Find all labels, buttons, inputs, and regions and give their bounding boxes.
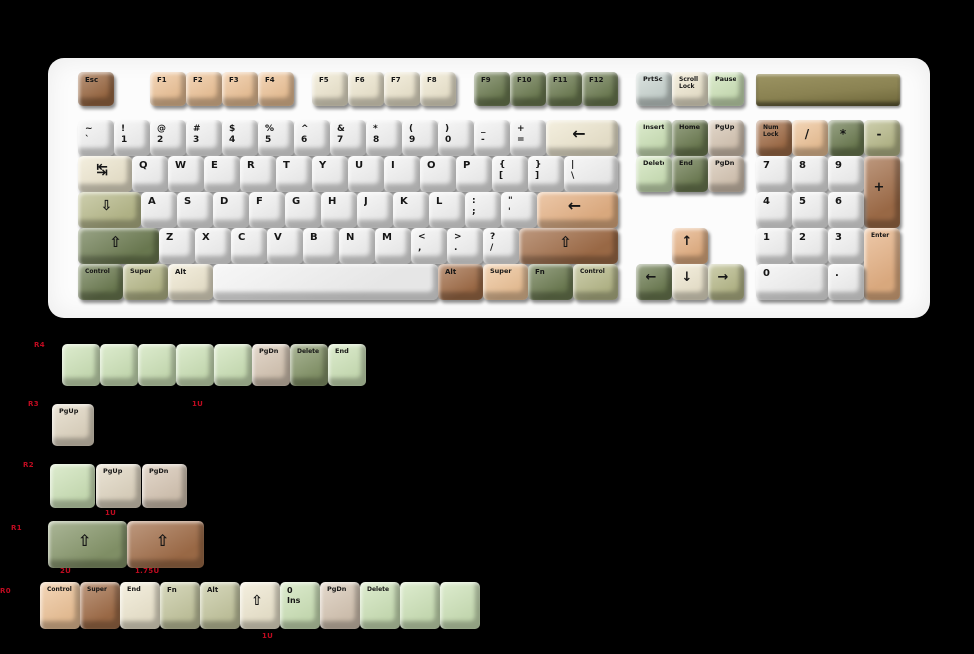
size-annotation: 1.75U	[135, 567, 159, 575]
key-6: ^ 6	[294, 120, 330, 156]
key-legend: Esc	[85, 76, 106, 95]
key-shift-2u: ⇧	[48, 521, 127, 568]
key-legend: ←	[549, 122, 609, 146]
key-f6: F6	[348, 72, 384, 106]
key-numpad-7: 7	[756, 156, 792, 192]
key-legend: 0 Ins	[287, 586, 312, 618]
key-pgup: PgUp	[96, 464, 141, 508]
key-numpad-6: 6	[828, 192, 864, 228]
key-legend: ⇧	[243, 584, 271, 619]
key-left-super: Super	[123, 264, 168, 300]
key-legend: S	[184, 196, 205, 217]
key-legend: PgDn	[715, 160, 736, 181]
key-legend: PgDn	[149, 468, 179, 497]
key-1: ! 1	[114, 120, 150, 156]
key-delete: Delete	[290, 344, 328, 386]
key-legend: W	[175, 160, 196, 181]
key-legend: Insert	[643, 124, 664, 145]
key-rbracket: } ]	[528, 156, 564, 192]
key-alt: Alt	[200, 582, 240, 629]
key-legend	[407, 586, 432, 618]
row-annotation: R1	[11, 524, 22, 532]
key-e: E	[204, 156, 240, 192]
key-arrow-right: →	[708, 264, 744, 300]
key-fn: Fn	[160, 582, 200, 629]
size-annotation: 1U	[262, 632, 273, 640]
key-legend: →	[711, 266, 735, 290]
key-legend: V	[274, 232, 295, 253]
key-f: F	[249, 192, 285, 228]
key-quote: " '	[501, 192, 537, 228]
key-m: M	[375, 228, 411, 264]
key-legend: Q	[139, 160, 160, 181]
key-legend: Alt	[207, 586, 232, 618]
key-n: N	[339, 228, 375, 264]
key-b: B	[303, 228, 339, 264]
key-num-lock: Num Lock	[756, 120, 792, 156]
key-legend: -	[867, 122, 891, 146]
key-arrow-down: ↓	[672, 264, 708, 300]
key-pause: Pause	[708, 72, 744, 106]
key-legend: PgUp	[59, 408, 86, 435]
key-shift-1u: ⇧	[240, 582, 280, 629]
key-numpad-1: 1	[756, 228, 792, 264]
key-legend: U	[355, 160, 376, 181]
key-right-shift: ⇧	[519, 228, 618, 264]
key-numpad-minus: -	[864, 120, 900, 156]
key-legend: R	[247, 160, 268, 181]
key-legend: End	[127, 586, 152, 618]
key-legend: F5	[319, 76, 340, 95]
key-blank	[50, 464, 95, 508]
key-legend: ) 0	[445, 124, 466, 145]
key-legend: > .	[454, 232, 475, 253]
key-blank	[62, 344, 100, 386]
key-end: End	[120, 582, 160, 629]
key-legend: " '	[508, 196, 529, 217]
key-legend	[145, 348, 168, 375]
key-t: T	[276, 156, 312, 192]
key-s: S	[177, 192, 213, 228]
key-0-ins: 0 Ins	[280, 582, 320, 629]
key-period: > .	[447, 228, 483, 264]
key-legend: Fn	[535, 268, 565, 289]
key-7: & 7	[330, 120, 366, 156]
key-legend: G	[292, 196, 313, 217]
key-q: Q	[132, 156, 168, 192]
key-legend: T	[283, 160, 304, 181]
key-legend	[107, 348, 130, 375]
key-numpad-0: 0	[756, 264, 828, 300]
size-annotation: 2U	[60, 567, 71, 575]
key-r: R	[240, 156, 276, 192]
key-numpad-dot: .	[828, 264, 864, 300]
key-legend: Num Lock	[763, 124, 784, 145]
key-pgup: PgUp	[708, 120, 744, 156]
key-left-shift: ⇧	[78, 228, 159, 264]
key-right-alt: Alt	[438, 264, 483, 300]
size-annotation: 1U	[192, 400, 203, 408]
key-h: H	[321, 192, 357, 228]
key-legend: Fn	[167, 586, 192, 618]
key-legend: Control	[47, 586, 72, 618]
key-o: O	[420, 156, 456, 192]
key-0: ) 0	[438, 120, 474, 156]
key-legend: PgDn	[327, 586, 352, 618]
key-pgdn: PgDn	[252, 344, 290, 386]
key-legend: ⇧	[522, 230, 609, 254]
key-legend	[183, 348, 206, 375]
key-5: % 5	[258, 120, 294, 156]
row-annotation: R4	[34, 341, 45, 349]
key-grave: ~ `	[78, 120, 114, 156]
key-legend	[447, 586, 472, 618]
key-blank	[400, 582, 440, 629]
key-x: X	[195, 228, 231, 264]
key-legend: 2	[799, 232, 820, 253]
key-delete: Delete	[636, 156, 672, 192]
key-legend: _ -	[481, 124, 502, 145]
key-right-control: Control	[573, 264, 618, 300]
key-legend: PrtSc	[643, 76, 664, 95]
key-legend: % 5	[265, 124, 286, 145]
key-legend: $ 4	[229, 124, 250, 145]
key-equals: + =	[510, 120, 546, 156]
key-legend: F10	[517, 76, 538, 95]
key-legend: & 7	[337, 124, 358, 145]
row-annotation: R0	[0, 587, 11, 595]
key-legend: +	[867, 158, 891, 218]
key-legend: ^ 6	[301, 124, 322, 145]
key-legend: E	[211, 160, 232, 181]
key-l: L	[429, 192, 465, 228]
key-pgdn: PgDn	[708, 156, 744, 192]
key-legend: O	[427, 160, 448, 181]
key-minus: _ -	[474, 120, 510, 156]
key-numpad-4: 4	[756, 192, 792, 228]
key-legend: F4	[265, 76, 286, 95]
key-k: K	[393, 192, 429, 228]
key-legend: F6	[355, 76, 376, 95]
row-annotation: R3	[28, 400, 39, 408]
key-super: Super	[80, 582, 120, 629]
key-legend	[69, 348, 92, 375]
key-numpad-3: 3	[828, 228, 864, 264]
key-legend: F8	[427, 76, 448, 95]
key-enter: ←	[537, 192, 618, 228]
key-legend: 4	[763, 196, 784, 217]
key-home: Home	[672, 120, 708, 156]
key-legend: Scroll Lock	[679, 76, 700, 95]
key-fn: Fn	[528, 264, 573, 300]
key-left-control: Control	[78, 264, 123, 300]
key-3: # 3	[186, 120, 222, 156]
key-p: P	[456, 156, 492, 192]
key-comma: < ,	[411, 228, 447, 264]
key-insert: Insert	[636, 120, 672, 156]
key-legend: N	[346, 232, 367, 253]
key-legend: ! 1	[121, 124, 142, 145]
key-legend: Delete	[297, 348, 320, 375]
key-legend	[221, 348, 244, 375]
key-blank	[440, 582, 480, 629]
key-legend	[220, 268, 430, 289]
key-numpad-slash: /	[792, 120, 828, 156]
key-esc: Esc	[78, 72, 114, 106]
key-legend: F1	[157, 76, 178, 95]
key-4: $ 4	[222, 120, 258, 156]
key-f10: F10	[510, 72, 546, 106]
key-legend: ↓	[675, 266, 699, 290]
key-i: I	[384, 156, 420, 192]
key-f11: F11	[546, 72, 582, 106]
key-u: U	[348, 156, 384, 192]
key-numpad-8: 8	[792, 156, 828, 192]
row-annotation: R2	[23, 461, 34, 469]
key-legend: ←	[540, 194, 609, 218]
key-end: End	[672, 156, 708, 192]
key-pgup: PgUp	[52, 404, 94, 446]
key-f4: F4	[258, 72, 294, 106]
key-legend: P	[463, 160, 484, 181]
key-legend: F11	[553, 76, 574, 95]
key-caps-lock: ⇩	[78, 192, 141, 228]
key-legend: Delete	[367, 586, 392, 618]
key-v: V	[267, 228, 303, 264]
key-tab: ↹	[78, 156, 132, 192]
key-2: @ 2	[150, 120, 186, 156]
key-d: D	[213, 192, 249, 228]
key-legend: End	[679, 160, 700, 181]
key-legend: D	[220, 196, 241, 217]
key-legend: | \	[571, 160, 610, 181]
key-legend: < ,	[418, 232, 439, 253]
key-lbracket: { [	[492, 156, 528, 192]
key-semicolon: : ;	[465, 192, 501, 228]
keycap-render-stage: EscF1F2F3F4F5F6F7F8F9F10F11F12PrtScScrol…	[0, 0, 974, 654]
key-legend: Super	[490, 268, 520, 289]
key-legend: *	[831, 122, 855, 146]
size-annotation: 1U	[105, 509, 116, 517]
key-legend: F3	[229, 76, 250, 95]
key-legend	[57, 468, 87, 497]
key-legend: F2	[193, 76, 214, 95]
key-arrow-up: ↑	[672, 228, 708, 264]
key-arrow-left: ←	[636, 264, 672, 300]
key-blank	[138, 344, 176, 386]
key-pgdn: PgDn	[142, 464, 187, 508]
key-right-super: Super	[483, 264, 528, 300]
key-w: W	[168, 156, 204, 192]
key-numpad-2: 2	[792, 228, 828, 264]
key-legend: 7	[763, 160, 784, 181]
key-spacebar	[213, 264, 438, 300]
key-legend: Control	[580, 268, 610, 289]
key-pgdn: PgDn	[320, 582, 360, 629]
key-legend: } ]	[535, 160, 556, 181]
key-numpad-plus: +	[864, 156, 900, 228]
key-legend: 6	[835, 196, 856, 217]
key-legend: 9	[835, 160, 856, 181]
key-legend: Pause	[715, 76, 736, 95]
key-legend: H	[328, 196, 349, 217]
key-legend: Control	[85, 268, 115, 289]
key-8: * 8	[366, 120, 402, 156]
key-legend: @ 2	[157, 124, 178, 145]
key-legend: 3	[835, 232, 856, 253]
key-legend: .	[835, 268, 856, 289]
key-legend: Alt	[445, 268, 475, 289]
key-f2: F2	[186, 72, 222, 106]
key-f3: F3	[222, 72, 258, 106]
key-legend: F7	[391, 76, 412, 95]
key-legend: ? /	[490, 232, 511, 253]
key-numpad-star: *	[828, 120, 864, 156]
key-legend: + =	[517, 124, 538, 145]
key-end: End	[328, 344, 366, 386]
key-shift-175u: ⇧	[127, 521, 204, 568]
key-legend: : ;	[472, 196, 493, 217]
key-legend: ←	[639, 266, 663, 290]
key-9: ( 9	[402, 120, 438, 156]
key-legend: A	[148, 196, 169, 217]
key-legend: M	[382, 232, 403, 253]
key-scroll-lock: Scroll Lock	[672, 72, 708, 106]
key-blank	[176, 344, 214, 386]
key-control: Control	[40, 582, 80, 629]
key-legend: Enter	[871, 232, 892, 289]
key-numpad-5: 5	[792, 192, 828, 228]
key-legend: ⇧	[81, 230, 150, 254]
key-legend: 8	[799, 160, 820, 181]
key-f8: F8	[420, 72, 456, 106]
key-legend: F	[256, 196, 277, 217]
key-legend: { [	[499, 160, 520, 181]
key-numpad-9: 9	[828, 156, 864, 192]
key-slash: ? /	[483, 228, 519, 264]
key-f5: F5	[312, 72, 348, 106]
key-f9: F9	[474, 72, 510, 106]
key-legend: # 3	[193, 124, 214, 145]
key-legend: ⇩	[81, 194, 132, 218]
key-numpad-enter: Enter	[864, 228, 900, 300]
key-backslash: | \	[564, 156, 618, 192]
key-legend: J	[364, 196, 385, 217]
key-blank	[100, 344, 138, 386]
key-legend: 0	[763, 268, 820, 289]
key-legend: ↹	[81, 158, 123, 182]
key-legend: L	[436, 196, 457, 217]
key-g: G	[285, 192, 321, 228]
key-legend: PgUp	[715, 124, 736, 145]
key-legend: Alt	[175, 268, 205, 289]
key-legend: Super	[130, 268, 160, 289]
key-legend: ⇧	[130, 523, 195, 558]
key-legend: F12	[589, 76, 610, 95]
key-blank	[214, 344, 252, 386]
key-legend: 5	[799, 196, 820, 217]
key-legend: F9	[481, 76, 502, 95]
key-legend: Super	[87, 586, 112, 618]
key-legend: ↑	[675, 230, 699, 254]
key-legend: ( 9	[409, 124, 430, 145]
key-legend: 1	[763, 232, 784, 253]
key-f7: F7	[384, 72, 420, 106]
key-legend: Home	[679, 124, 700, 145]
brass-badge	[756, 74, 900, 106]
key-legend: * 8	[373, 124, 394, 145]
key-legend: X	[202, 232, 223, 253]
key-delete: Delete	[360, 582, 400, 629]
key-legend: End	[335, 348, 358, 375]
key-legend: C	[238, 232, 259, 253]
key-legend: Y	[319, 160, 340, 181]
key-a: A	[141, 192, 177, 228]
key-c: C	[231, 228, 267, 264]
key-f12: F12	[582, 72, 618, 106]
key-legend: K	[400, 196, 421, 217]
key-legend: PgDn	[259, 348, 282, 375]
key-y: Y	[312, 156, 348, 192]
key-j: J	[357, 192, 393, 228]
key-legend: ⇧	[51, 523, 118, 558]
key-legend: B	[310, 232, 331, 253]
key-legend: Delete	[643, 160, 664, 181]
key-z: Z	[159, 228, 195, 264]
key-legend: I	[391, 160, 412, 181]
key-f1: F1	[150, 72, 186, 106]
key-legend: ~ `	[85, 124, 106, 145]
key-legend: Z	[166, 232, 187, 253]
key-left-alt: Alt	[168, 264, 213, 300]
key-backspace: ←	[546, 120, 618, 156]
key-legend: /	[795, 122, 819, 146]
key-legend: PgUp	[103, 468, 133, 497]
key-print-screen: PrtSc	[636, 72, 672, 106]
